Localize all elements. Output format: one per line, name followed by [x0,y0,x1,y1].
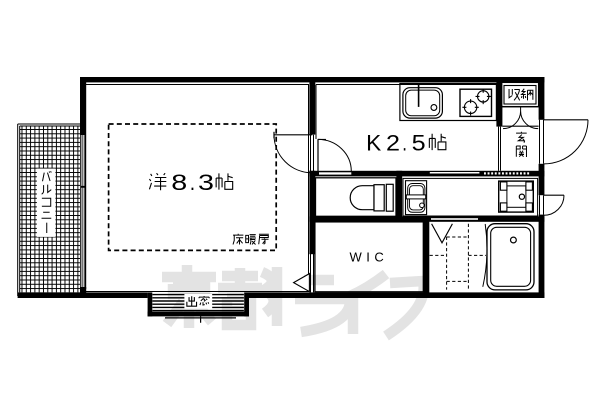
svg-text:5: 5 [412,131,426,156]
svg-text:.: . [190,170,195,195]
svg-text:.: . [402,131,407,156]
svg-text:K: K [366,131,381,156]
svg-text:8: 8 [171,170,187,195]
svg-text:3: 3 [198,170,214,195]
svg-text:2: 2 [386,131,400,156]
svg-text:WIC: WIC [350,249,389,264]
